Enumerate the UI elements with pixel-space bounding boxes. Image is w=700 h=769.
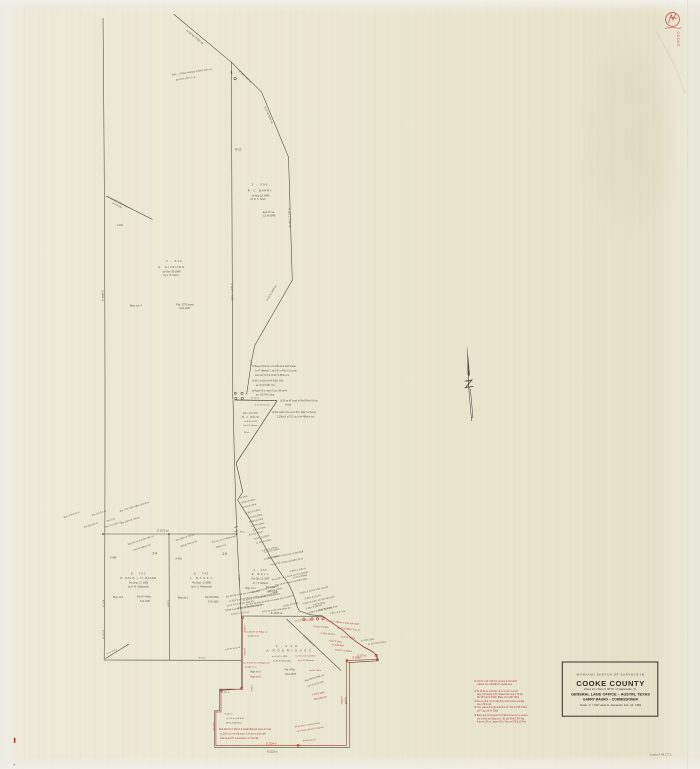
- svg-text:by H. S. Wadsworth: by H. S. Wadsworth: [191, 586, 212, 589]
- svg-text:by I. P. Roberts: by I. P. Roberts: [253, 582, 269, 585]
- svg-text:⑤ 56 va W. bank of Red River: ⑤ 56 va W. bank of Red River 9.6 va: [280, 399, 318, 402]
- svg-text:on 8-30-1937: on 8-30-1937: [244, 421, 258, 423]
- svg-text:va dgr trees: va dgr trees: [245, 666, 257, 669]
- svg-text:Pat 48 6 Bdrs: Pat 48 6 Bdrs: [205, 596, 220, 599]
- svg-text:W 52 N Blk Mou: W 52 N Blk Mou: [226, 722, 243, 724]
- svg-text:by J. E. Brown: by J. E. Brown: [243, 424, 258, 427]
- svg-text:⑥ the markᵈ S E cor of R.C. Ba: ⑥ the markᵈ S E cor of R.C. Barry aᵈ bei…: [272, 411, 316, 414]
- svg-text:by H. M. Wadsworth: by H. M. Wadsworth: [128, 586, 150, 589]
- svg-text:via So. 38va: via So. 38va: [309, 670, 322, 672]
- svg-text:COOKE COUNTY: COOKE COUNTY: [576, 679, 645, 688]
- svg-text:by R. C. Scott: by R. C. Scott: [250, 198, 265, 201]
- svg-text:E 2224 w: E 2224 w: [266, 742, 277, 745]
- svg-text:for R Wheeler 1 by 8 W, a Part: for R Wheeler 1 by 8 W, a Part 2 in corn…: [255, 370, 297, 373]
- svg-text:Pat Sept. 17, 1856: Pat Sept. 17, 1856: [129, 581, 149, 584]
- svg-text:on Oct 25, 1852: on Oct 25, 1852: [272, 655, 288, 658]
- svg-text:③ Beg at N E cor of a 100 acre: ③ Beg at N E cor of a 100 acre tract mad…: [252, 365, 296, 368]
- svg-text:Cooke ♯ 48 2 7 1: Cooke ♯ 48 2 7 1: [649, 752, 672, 756]
- svg-text:④ 84.2 va 28 vaᵈ W 6.88. 19w: ④ 84.2 va 28 vaᵈ W 6.88. 19w: [252, 380, 283, 383]
- svg-text:at cor W 5.88. 18+: at cor W 5.88. 18+: [256, 384, 276, 387]
- svg-text:A. HILBURN: A. HILBURN: [158, 265, 185, 269]
- svg-text:R-22: R-22: [235, 147, 242, 151]
- svg-text:at F ing a at W. 28va: at F ing a at W. 28va: [477, 709, 499, 712]
- svg-text:mkd va and H. somewhere on: mkd va and H. somewhere on this ball: [220, 737, 259, 740]
- svg-text:14 dgr trees: 14 dgr trees: [248, 634, 261, 637]
- svg-text:③ the set at E cor of oak: ③ the set at E cor of oak Doty and comm …: [474, 700, 525, 703]
- svg-text:15: 15: [222, 551, 228, 556]
- svg-text:va. N 13°W 2 8va: va. N 13°W 2 8va: [256, 395, 275, 397]
- svg-text:Pat Dec 13, 1847: Pat Dec 13, 1847: [252, 578, 270, 581]
- svg-text:S 500 w: S 500 w: [250, 684, 252, 692]
- svg-text:Brgs vol 1: Brgs vol 1: [178, 597, 189, 600]
- svg-text:2 - 306: 2 - 306: [252, 182, 269, 186]
- svg-text:A. R O D R I G U E Z: A. R O D R I G U E Z: [266, 649, 311, 653]
- svg-text:and stnᵈ N 8°E va W. N 88°E: and stnᵈ N 8°E va W. N 88°E 2 w: [255, 374, 289, 377]
- svg-text:va 281 va 2 miᵈ old stone: va 281 va 2 miᵈ old stone 2 pt also a po…: [220, 733, 266, 736]
- svg-text:GENERAL LAND OFFICE – AUSTIN,: GENERAL LAND OFFICE – AUSTIN, TEXAS: [571, 692, 650, 696]
- svg-text:Con Oct 20 no 1850: Con Oct 20 no 1850: [296, 655, 316, 658]
- svg-text:L . R A N E Y: L . R A N E Y: [190, 576, 213, 580]
- svg-text:2-641: 2-641: [117, 224, 124, 227]
- svg-text:COOKE: COOKE: [676, 32, 680, 48]
- svg-text:2-438: 2-438: [176, 558, 183, 561]
- svg-text:N 4889 va: N 4889 va: [101, 290, 104, 302]
- svg-text:2.18va N of S E cor of aᵈ Hil: 2.18va N of S E cor of aᵈ Hilburn sur.: [277, 415, 315, 418]
- svg-text:via 346 W 12 Ridge av: via 346 W 12 Ridge av: [246, 632, 269, 634]
- svg-text:and 2½ va: and 2½ va: [263, 210, 275, 214]
- svg-text:1 - 612: 1 - 612: [166, 259, 182, 263]
- svg-text:12-14-1848: 12-14-1848: [263, 215, 276, 218]
- svg-text:of this: of this: [285, 404, 292, 407]
- svg-text:WORKING SKETCH OF SURVEYS: WORKING SKETCH OF SURVEYS IN: [577, 673, 645, 677]
- svg-text:E 1393 va: E 1393 va: [271, 612, 283, 615]
- svg-text:va. 52 va of 4 R Pr: va. 52 va of 4 R Pr: [226, 717, 244, 720]
- svg-text:S 2284: S 2284: [167, 600, 169, 608]
- svg-text:Pat 47 4 Bdrs: Pat 47 4 Bdrs: [137, 596, 152, 599]
- svg-text:⑤ Again N a mark of cor, 28 va: ⑤ Again N a mark of cor, 28 vaᵈ N: [252, 389, 288, 392]
- svg-text:S 333 w: S 333 w: [222, 692, 230, 694]
- svg-text:Pat. 640a: Pat. 640a: [285, 669, 296, 672]
- svg-text:⑦ W 13.84 va and stk¹ int in: ⑦ W 13.84 va and stk¹ int in va mk / a c…: [474, 690, 519, 693]
- svg-text:⑨ Betw and sw E quart W: ⑨ Betw and sw E quart W of Red River by …: [474, 714, 529, 717]
- svg-text:Brgs vol 2: Brgs vol 2: [251, 676, 262, 679]
- svg-text:14: 14: [152, 551, 158, 556]
- svg-text:4 at the 28 va, Juann E 2v: 4 at the 28 va, Juann E 2v° bar va 278 E…: [477, 720, 527, 723]
- svg-text:About 2¾ miles N. 60°W. of Ga: About 2¾ miles N. 60°W. of Gainesville, …: [584, 687, 637, 691]
- svg-text:N 7447 — 7484: N 7447 — 7484: [230, 283, 234, 301]
- svg-text:2 - 430: 2 - 430: [253, 569, 267, 572]
- svg-text:on Aug 12ᵗ 1845: on Aug 12ᵗ 1845: [252, 194, 270, 198]
- svg-text:Brgs vol. 4: Brgs vol. 4: [130, 305, 142, 308]
- svg-text:beg of E bearg N W, Gaine: beg of E bearg N W, Gainesville and a 70…: [477, 693, 524, 696]
- svg-text:⑥ N 174 w 24' 318 mk va² an: ⑥ N 174 w 24' 318 mk va² and a mk bal N: [474, 680, 517, 683]
- svg-text:B. J. DOUD: B. J. DOUD: [242, 416, 259, 419]
- svg-text:E . B A L L: E . B A L L: [252, 572, 270, 576]
- svg-text:B - 742: B - 742: [194, 572, 209, 575]
- svg-text:2-439: 2-439: [110, 556, 117, 559]
- svg-text:1.27°W 214 vd: 1.27°W 214 vd: [255, 404, 270, 406]
- svg-text:B - 701: B - 701: [131, 572, 146, 575]
- svg-text:5-31-1855: 5-31-1855: [208, 602, 219, 604]
- svg-text:Pat Sept. 12-1856: Pat Sept. 12-1856: [192, 581, 211, 584]
- svg-text:marker cor of E Bal 2.1: marker cor of E Bal 2.1 Cedar 2va: [477, 683, 512, 686]
- svg-text:2 - 3 4 8: 2 - 3 4 8: [276, 644, 298, 648]
- svg-text:Brgs vol 3: Brgs vol 3: [251, 671, 262, 674]
- svg-text:SF-12760: SF-12760: [243, 412, 258, 415]
- svg-text:by J. B. Ramirez: by J. B. Ramirez: [298, 659, 314, 662]
- svg-text:Scale: 1″ = 500 varas E.: Scale: 1″ = 500 varas E. Alexander Feb. …: [580, 703, 642, 707]
- svg-text:5-11-1857: 5-11-1857: [140, 601, 151, 603]
- svg-text:N. 70 va: N. 70 va: [251, 398, 260, 400]
- svg-text:⑧ Tree oak and in pld and: ⑧ Tree oak and in pld and N E 12° bar N …: [474, 706, 528, 709]
- svg-text:R. C. BARRY: R. C. BARRY: [248, 189, 272, 193]
- svg-text:via 3¼6 W of 12 Ridge and: via 3¼6 W of 12 Ridge and: [243, 662, 270, 665]
- svg-text:3-31-1847: 3-31-1847: [179, 307, 191, 310]
- svg-text:Brgs vol 1: Brgs vol 1: [246, 587, 257, 590]
- svg-text:D. DAVIS ❘ O. BAKER: D. DAVIS ❘ O. BAKER: [120, 576, 156, 580]
- svg-text:Pnd 200.16' N 150 of S Cedar B: Pnd 200.16' N 150 of S Cedar Ball old st…: [219, 728, 272, 731]
- svg-text:45 va: 45 va: [240, 532, 246, 534]
- svg-text:by W. A. Reynolds: by W. A. Reynolds: [273, 659, 292, 662]
- svg-text:N 2223 w: N 2223 w: [267, 750, 278, 753]
- svg-text:E 157va: E 157va: [358, 655, 367, 657]
- svg-text:Rs 18° bar N 843/6. Blam: Rs 18° bar N 843/6. Blam mk S 837 28va: [477, 696, 520, 699]
- svg-text:one of this sur.: one of this sur.: [477, 703, 492, 706]
- svg-text:E 2070 va: E 2070 va: [157, 530, 169, 533]
- svg-text:GARRY MAURO – COMMISSIONER: GARRY MAURO – COMMISSIONER: [583, 697, 639, 701]
- svg-text:N 2276: N 2276: [102, 600, 104, 608]
- svg-text:Brgs vol 2: Brgs vol 2: [113, 596, 124, 599]
- svg-text:cor of this and Brgs cor.: cor of this and Brgs cor., 96 yds Red E …: [477, 717, 525, 720]
- svg-text:10-6-1878: 10-6-1878: [285, 673, 297, 676]
- svg-text:by L. B. Perry: by L. B. Perry: [163, 274, 179, 277]
- svg-text:95 va: 95 va: [244, 432, 250, 434]
